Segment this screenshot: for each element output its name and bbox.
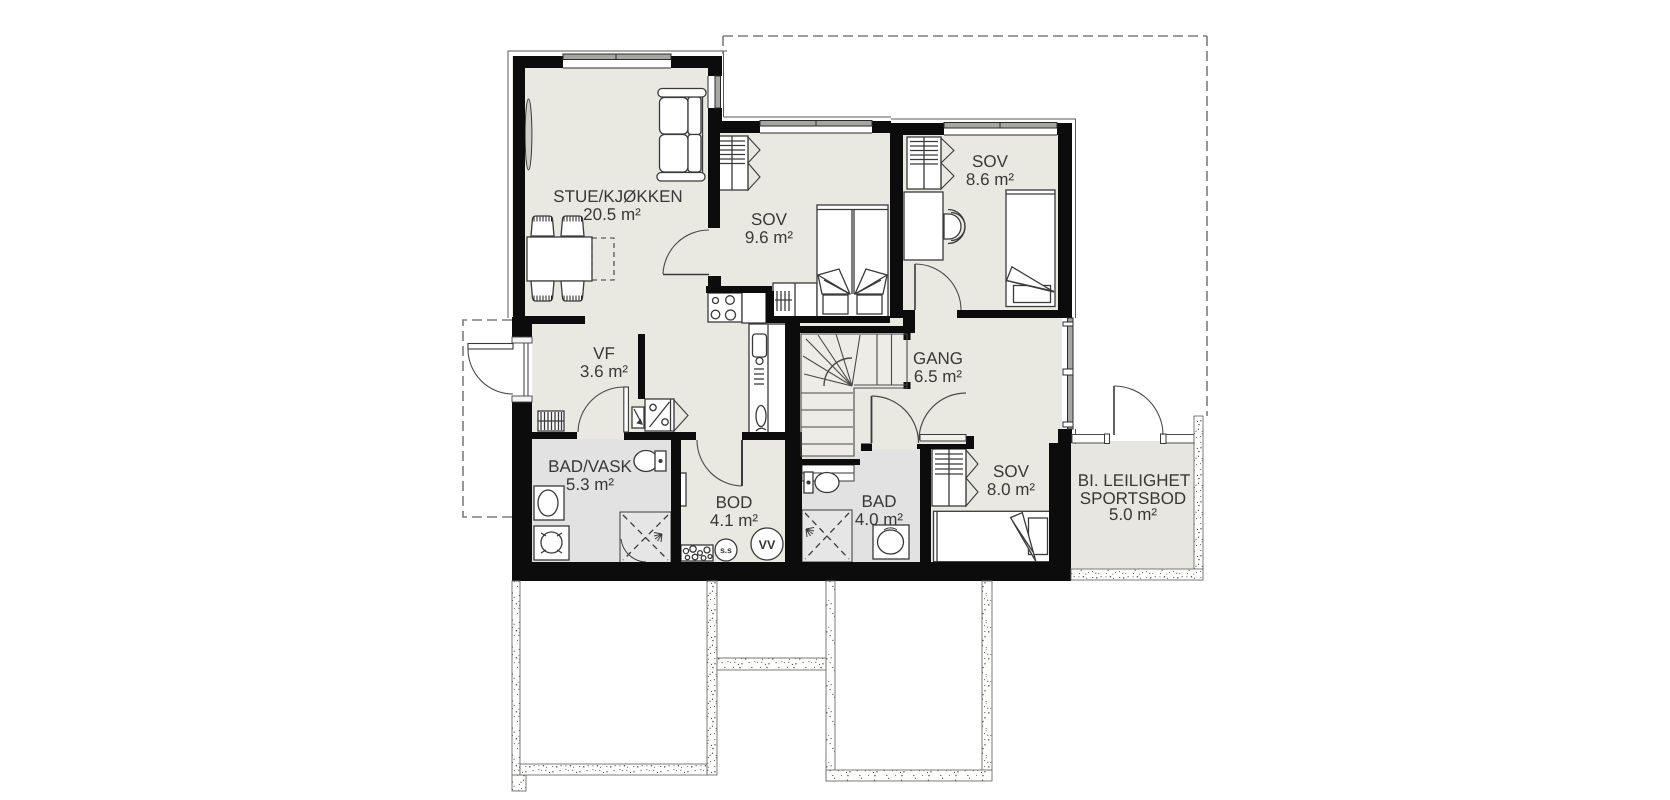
svg-text:STUE/KJØKKEN: STUE/KJØKKEN (553, 187, 682, 206)
svg-text:BAD: BAD (862, 492, 897, 511)
svg-text:8.6 m²: 8.6 m² (966, 170, 1015, 189)
svg-text:VF: VF (593, 344, 615, 363)
svg-text:3.6 m²: 3.6 m² (580, 362, 629, 381)
svg-text:5.3 m²: 5.3 m² (566, 475, 615, 494)
svg-text:6.5 m²: 6.5 m² (914, 367, 963, 386)
svg-text:SOV: SOV (993, 462, 1030, 481)
svg-text:4.0 m²: 4.0 m² (855, 510, 904, 529)
svg-text:BI. LEILIGHET: BI. LEILIGHET (1078, 471, 1190, 490)
svg-text:s.s: s.s (720, 545, 732, 555)
svg-text:20.5 m²: 20.5 m² (583, 205, 641, 224)
svg-text:SOV: SOV (751, 210, 788, 229)
svg-text:8.0 m²: 8.0 m² (987, 480, 1036, 499)
svg-text:9.6 m²: 9.6 m² (745, 228, 794, 247)
svg-text:4.1 m²: 4.1 m² (710, 511, 759, 530)
svg-text:SOV: SOV (972, 152, 1009, 171)
svg-text:BAD/VASK: BAD/VASK (548, 457, 632, 476)
svg-text:VV: VV (759, 538, 776, 552)
svg-text:GANG: GANG (913, 349, 963, 368)
svg-text:5.0 m²: 5.0 m² (1109, 505, 1158, 524)
svg-text:BOD: BOD (716, 493, 753, 512)
